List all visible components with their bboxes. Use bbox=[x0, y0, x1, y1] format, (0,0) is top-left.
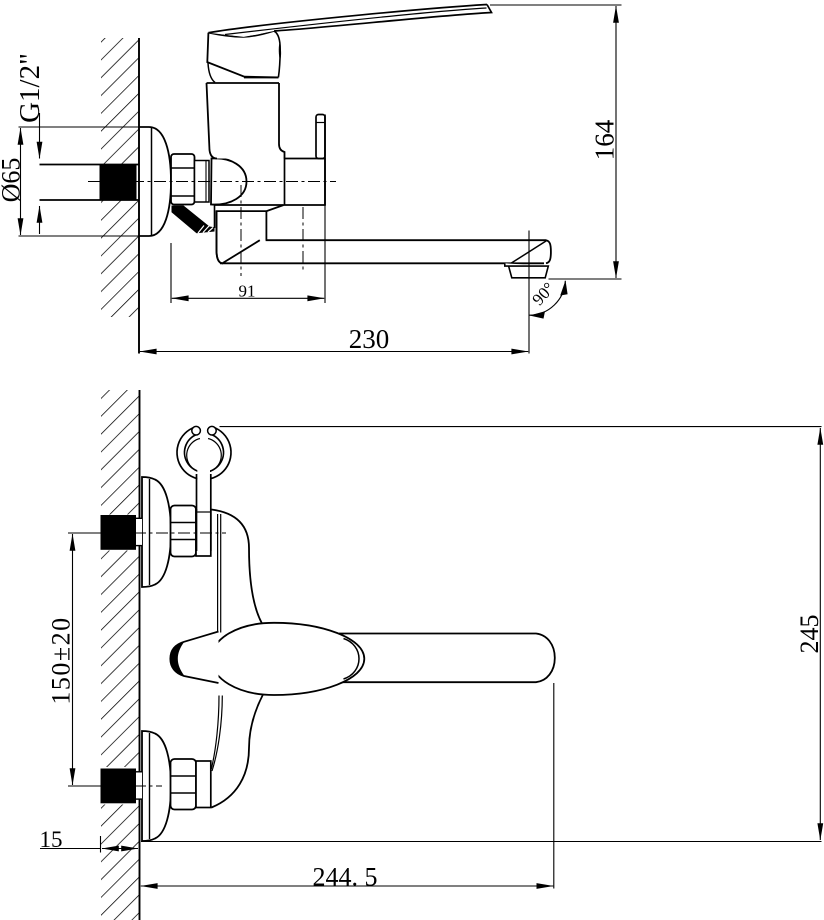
svg-text:Ø65: Ø65 bbox=[0, 158, 26, 203]
svg-text:150±20: 150±20 bbox=[47, 616, 76, 704]
svg-text:G1/2": G1/2" bbox=[14, 53, 46, 123]
svg-text:244. 5: 244. 5 bbox=[313, 863, 378, 892]
svg-text:230: 230 bbox=[349, 324, 390, 354]
svg-text:164: 164 bbox=[590, 119, 620, 160]
svg-text:91: 91 bbox=[239, 282, 256, 301]
svg-text:245: 245 bbox=[795, 615, 824, 654]
svg-text:15: 15 bbox=[40, 827, 63, 852]
